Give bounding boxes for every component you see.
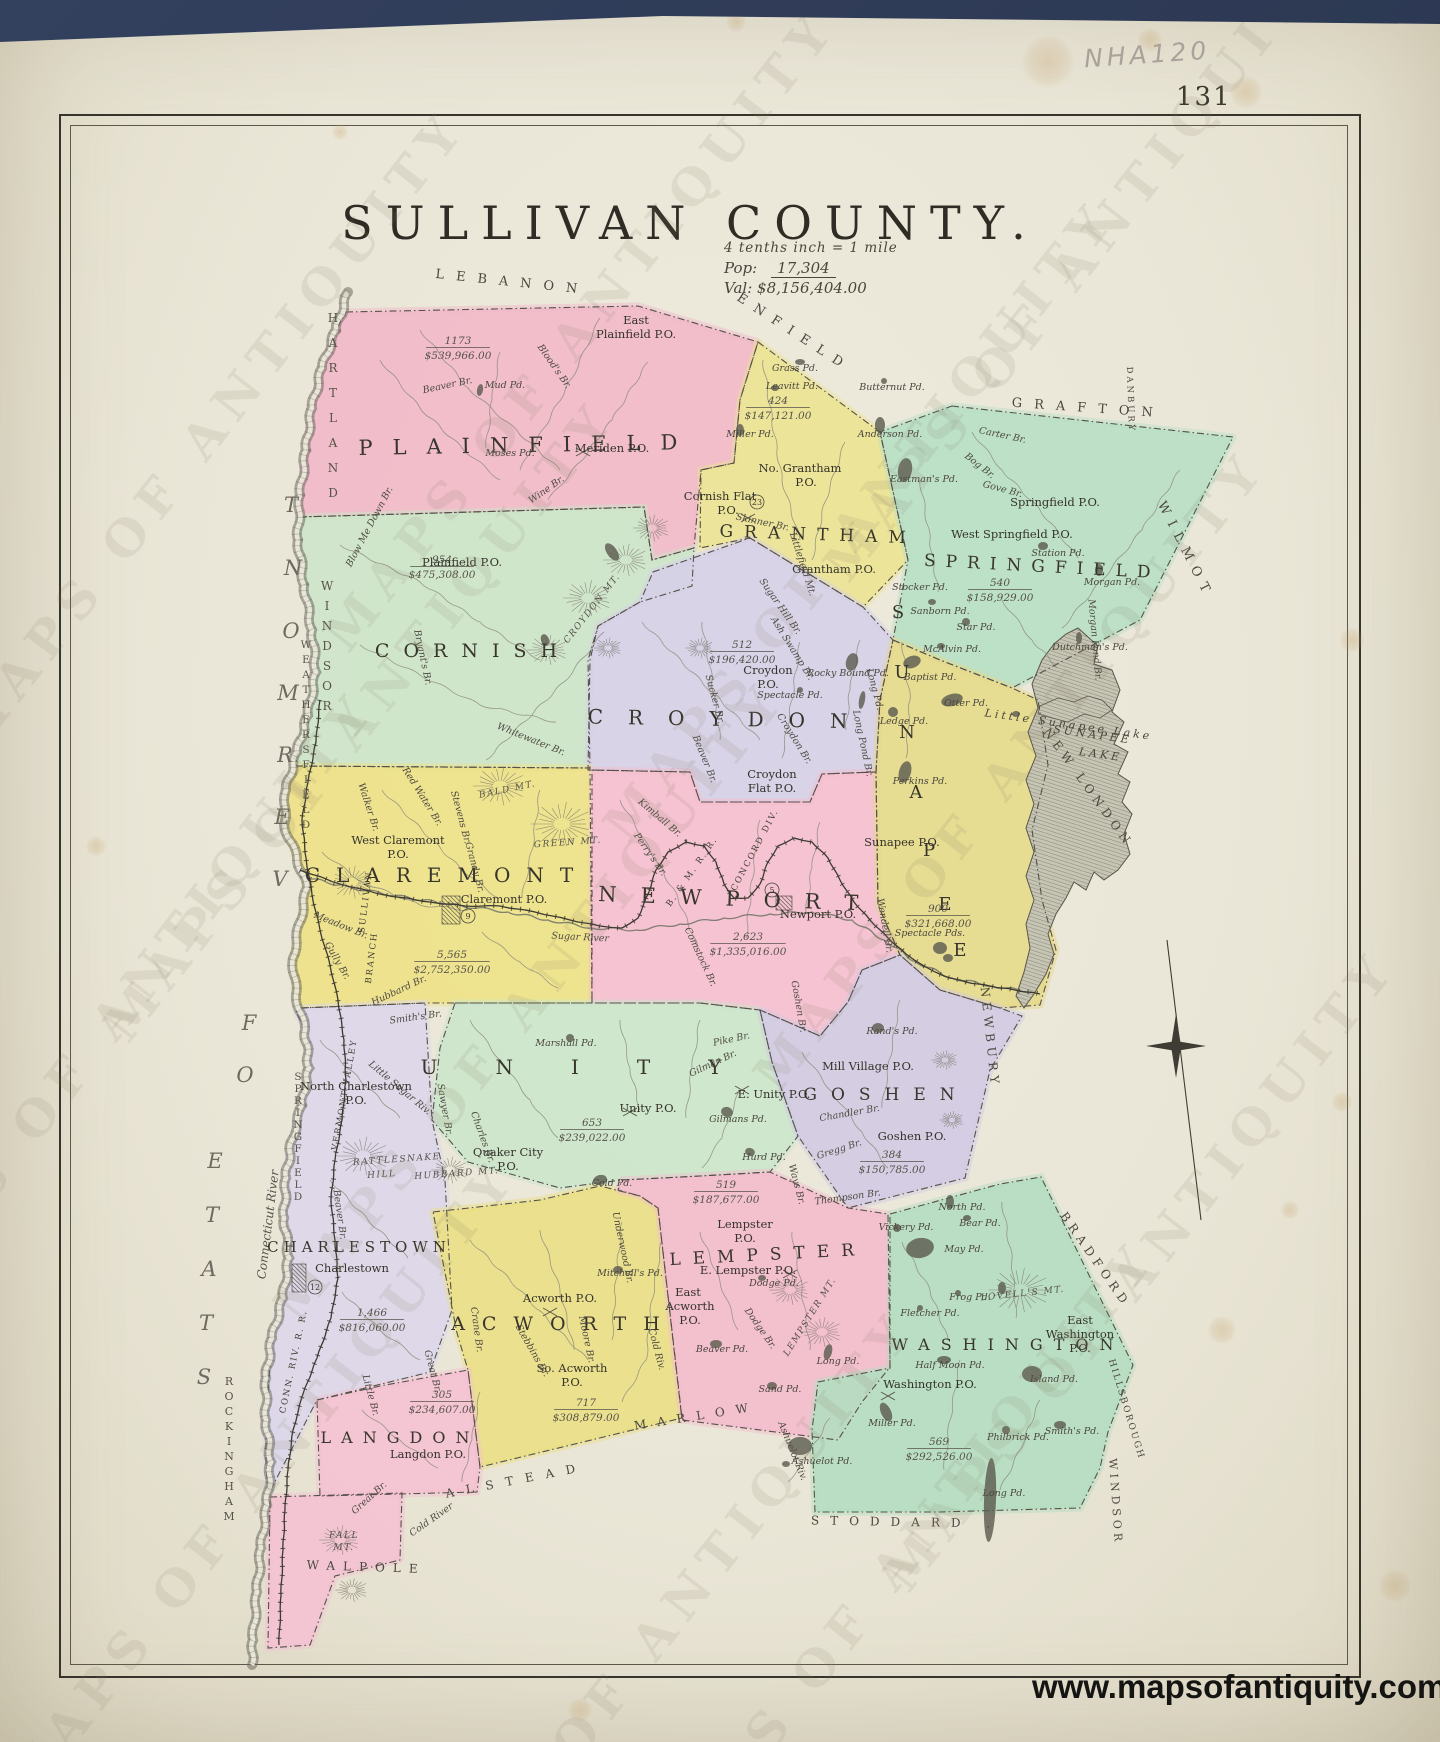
- place-label: P.O.: [387, 847, 408, 861]
- vermont-town-letter: N: [328, 461, 339, 475]
- vermont-town-letter: I: [296, 1155, 300, 1167]
- town-pop-washington: 569: [929, 1436, 949, 1448]
- pond-label: Miller Pd.: [725, 429, 774, 440]
- pond-label: Bear Pd.: [958, 1218, 1000, 1229]
- town-name-letter-sunapee: E: [953, 940, 966, 961]
- vermont-town-letter: G: [294, 1131, 302, 1143]
- pond-label: Sand Pd.: [759, 1384, 802, 1395]
- vermont-town-letter: C: [225, 1405, 233, 1418]
- neighbor-label: WINDSOR: [1106, 1458, 1125, 1546]
- place-label: P.O.: [757, 677, 778, 691]
- vermont-town-letter: A: [301, 669, 310, 681]
- town-pop-newport: 2,623: [732, 931, 763, 943]
- vermont-town-letter: W: [321, 579, 334, 593]
- place-label: Acworth: [664, 1299, 715, 1313]
- place-label: Washington: [1046, 1327, 1115, 1341]
- place-label: Langdon P.O.: [390, 1447, 466, 1461]
- map-sheet: NHA120 131 SULLIVAN COUNTY. 4 tenths inc…: [0, 0, 1440, 1742]
- pond-label: Long Pd.: [816, 1356, 860, 1367]
- vermont-town-letter: G: [225, 1465, 234, 1478]
- vermont-town-letter: E: [302, 789, 310, 801]
- pond-label: Grass Pd.: [772, 363, 818, 374]
- place-label: Sunapee P.O.: [864, 835, 940, 849]
- vermont-town-letter: H: [224, 1480, 234, 1493]
- pond-label: Station Pd.: [1031, 548, 1084, 559]
- pond-label: Marshall Pd.: [534, 1038, 596, 1049]
- pond-label: Anderson Pd.: [857, 429, 922, 440]
- town-pop-lempster: 519: [716, 1179, 736, 1191]
- state-of-vermont-letter: M: [276, 681, 299, 705]
- pond-label: Ledge Pd.: [879, 716, 928, 727]
- pond-label: Smith's Pd.: [1045, 1426, 1100, 1437]
- place-label: Meriden P.O.: [575, 441, 649, 455]
- state-of-vermont-letter: S: [197, 1365, 211, 1389]
- pond-label: Cold Pd.: [592, 1178, 633, 1189]
- vermont-town-letter: L: [295, 1179, 302, 1191]
- town-val-grantham: $147,121.00: [745, 410, 812, 422]
- vermont-town-letter: F: [302, 759, 309, 771]
- mountain-label: HILL: [366, 1169, 397, 1181]
- town-pop-springfield: 540: [990, 577, 1010, 589]
- vermont-town-letter: N: [224, 1450, 234, 1463]
- pond-label: Fletcher Pd.: [899, 1308, 959, 1319]
- line: [448, 1158, 450, 1166]
- circled-number-text: 9: [465, 912, 470, 921]
- stream-label: Cold River: [408, 1500, 457, 1539]
- vermont-town-letter: F: [294, 1143, 301, 1155]
- vermont-town-letter: R: [322, 699, 332, 713]
- town-name-croydon: CROYDON: [587, 705, 872, 734]
- mountain-label: FALL: [328, 1531, 359, 1541]
- town-name-charlestown: CHARLESTOWN: [267, 1238, 451, 1256]
- state-of-vermont-letter: V: [272, 867, 289, 891]
- pond-label: McAlvin Pd.: [922, 644, 981, 655]
- vermont-town-letter: E: [294, 1167, 302, 1179]
- vermont-town-letter: D: [322, 639, 332, 653]
- line: [355, 1582, 362, 1588]
- state-of-vermont-letter: O: [236, 1063, 253, 1087]
- town-pop-croydon: 512: [732, 639, 752, 651]
- vermont-town-letter: H: [328, 311, 338, 325]
- line: [1167, 940, 1201, 1220]
- town-name-langdon: LANGDON: [321, 1428, 480, 1447]
- vermont-town-letter: M: [223, 1510, 234, 1523]
- place-label: P.O.: [1069, 1341, 1090, 1355]
- state-of-vermont-letter: T: [284, 493, 300, 517]
- pond-label: Sanborn Pd.: [910, 606, 969, 617]
- place-label: Croydon: [743, 663, 793, 677]
- village-block: [442, 896, 460, 924]
- place-label: Newport P.O.: [780, 907, 856, 921]
- pond-label: Spectacle Pds.: [895, 928, 965, 939]
- vermont-town-letter: I: [296, 1107, 300, 1119]
- place-label: Acworth P.O.: [522, 1291, 597, 1305]
- vermont-town-letter: E: [302, 654, 310, 666]
- pond-label: Stocker Pd.: [892, 582, 948, 593]
- town-val-acworth: $308,879.00: [553, 1412, 620, 1424]
- place-label: P.O.: [679, 1313, 700, 1327]
- line: [346, 1593, 350, 1600]
- polygon: [1146, 1041, 1206, 1051]
- place-label: P.O.: [561, 1375, 582, 1389]
- place-label: No. Grantham: [759, 461, 842, 475]
- town-pop-sunapee: 900: [928, 903, 948, 915]
- vermont-town-letter: O: [322, 679, 332, 693]
- place-label: West Springfield P.O.: [951, 527, 1073, 541]
- vermont-town-letter: I: [227, 1435, 231, 1448]
- neighbor-label: LEBANON: [435, 267, 590, 298]
- line: [453, 1161, 461, 1167]
- circled-number-text: 12: [310, 1283, 320, 1292]
- place-label: E. Lempster P.O.: [700, 1263, 796, 1277]
- place-label: Croydon: [747, 767, 797, 781]
- line: [451, 1157, 453, 1167]
- vermont-town-letter: W: [301, 639, 312, 651]
- line: [353, 1578, 355, 1587]
- pond-label: Gilmans Pd.: [709, 1114, 767, 1125]
- pond-label: Dodge Pd.: [748, 1278, 799, 1289]
- town-pop-acworth: 717: [576, 1397, 596, 1409]
- town-name-goshen: GOSHEN: [803, 1085, 968, 1105]
- pond-label: Rand's Pd.: [865, 1026, 917, 1037]
- vermont-town-letter: S: [323, 659, 331, 673]
- neighbor-label: STODDARD .: [811, 1513, 1001, 1530]
- state-of-vermont-letter: N: [283, 556, 303, 580]
- place-label: Unity P.O.: [619, 1101, 676, 1115]
- vermont-town-letter: L: [329, 411, 337, 425]
- town-pop-unity: 653: [582, 1117, 602, 1129]
- place-label: West Claremont: [351, 833, 445, 847]
- vermont-town-letter: O: [224, 1390, 233, 1403]
- vermont-town-letter: T: [329, 386, 337, 400]
- town-val-claremont: $2,752,350.00: [414, 964, 491, 976]
- pond-label: Island Pd.: [1029, 1374, 1078, 1385]
- pond-label: Butternut Pd.: [858, 382, 924, 393]
- pond-label: Philbrick Pd.: [986, 1432, 1049, 1443]
- vermont-town-letter: L: [303, 804, 310, 816]
- line: [350, 1580, 351, 1587]
- town-pop-charlestown: 1,466: [357, 1307, 387, 1319]
- pond-label: Eastman's Pd.: [889, 474, 958, 485]
- vermont-town-letter: N: [293, 1119, 302, 1131]
- state-of-vermont-letter: O: [282, 619, 299, 643]
- town-pop-claremont: 5,565: [437, 949, 467, 961]
- pond-label: Mud Pd.: [484, 380, 525, 391]
- vermont-town-letter: I: [304, 774, 308, 786]
- vermont-town-letter: D: [294, 1191, 302, 1203]
- pond-label: Leavitt Pd.: [765, 381, 818, 392]
- vermont-town-letter: H: [301, 699, 310, 711]
- place-label: East: [1067, 1313, 1093, 1327]
- state-of-vermont-letter: T: [199, 1311, 215, 1335]
- place-label: Claremont P.O.: [461, 892, 548, 906]
- pond-label: Miller Pd.: [867, 1418, 916, 1429]
- state-of-vermont-letter: E: [206, 1149, 222, 1173]
- town-val-washington: $292,526.00: [906, 1451, 973, 1463]
- pond-label: May Pd.: [943, 1244, 983, 1255]
- pond-label: Hurd Pd.: [741, 1152, 786, 1163]
- photo-background: NHA120 131 SULLIVAN COUNTY. 4 tenths inc…: [0, 0, 1440, 1742]
- pond-label: Moses Pd.: [484, 448, 534, 459]
- vermont-town-letter: T: [302, 684, 309, 696]
- town-name-acworth: ACWORTH: [450, 1313, 677, 1335]
- town-val-newport: $1,335,016.00: [710, 946, 787, 958]
- vermont-town-letter: A: [328, 436, 338, 450]
- pond-label: Perkins Pd.: [892, 776, 947, 787]
- town-val-goshen: $150,785.00: [859, 1164, 926, 1176]
- place-label: Washington P.O.: [883, 1377, 977, 1391]
- town-name-claremont: CLAREMONT: [305, 863, 589, 887]
- vermont-town-letter: A: [224, 1495, 234, 1508]
- pond-label: Half Moon Pd.: [914, 1360, 984, 1371]
- place-label: P.O.: [497, 1159, 518, 1173]
- town-val-lempster: $187,677.00: [693, 1194, 760, 1206]
- place-label: P.O.: [795, 475, 816, 489]
- place-label: Plainfield P.O.: [596, 327, 676, 341]
- town-pop-plainfield: 1173: [445, 335, 472, 347]
- pond: [782, 1461, 790, 1467]
- vermont-town-letter: D: [328, 486, 338, 500]
- river-name: Connecticut River: [254, 1168, 281, 1280]
- place-label: Plainfield P.O.: [422, 555, 502, 569]
- line: [353, 1593, 355, 1602]
- pond-label: Morgan Pd.: [1083, 577, 1140, 588]
- vermont-town-letter: I: [325, 599, 330, 613]
- town-val-springfield: $158,929.00: [967, 592, 1034, 604]
- seller-url-watermark: www.mapsofantiquity.com: [1032, 1668, 1440, 1706]
- line: [354, 1593, 358, 1600]
- state-of-vermont-letter: T: [205, 1203, 221, 1227]
- state-of-vermont-letter: R: [276, 743, 293, 767]
- pond: [933, 942, 947, 954]
- vermont-town-letter: N: [322, 619, 333, 633]
- pond-label: North Pd.: [937, 1202, 985, 1213]
- vermont-town-letter: D: [302, 819, 310, 831]
- town-pop-goshen: 384: [882, 1149, 902, 1161]
- town-name-cornish: CORNISH: [375, 640, 571, 662]
- vermont-town-letter: R: [294, 1095, 303, 1107]
- state-of-vermont-letter: E: [273, 805, 289, 829]
- place-label: Mill Village P.O.: [822, 1059, 914, 1073]
- place-label: E. Unity P.O.: [738, 1087, 811, 1101]
- state-of-vermont-letter: A: [199, 1257, 216, 1281]
- state-of-vermont-letter: F: [241, 1011, 258, 1035]
- place-label: Goshen P.O.: [878, 1129, 947, 1143]
- pond-label: Otter Pd.: [944, 698, 988, 709]
- pond: [943, 954, 953, 962]
- vermont-town-letter: E: [302, 714, 310, 726]
- pond-label: Baptist Pd.: [903, 672, 957, 683]
- mountain-hachure: [335, 1578, 366, 1602]
- vermont-town-letter: K: [225, 1420, 234, 1433]
- pond-label: Long Pd.: [982, 1488, 1026, 1499]
- vermont-town-letter: A: [328, 336, 338, 350]
- place-label: Charlestown: [315, 1261, 389, 1275]
- line: [350, 1593, 351, 1599]
- place-label: Lempster: [717, 1217, 773, 1231]
- vermont-town-letter: R: [225, 1375, 234, 1388]
- pond-label: Vickery Pd.: [879, 1222, 934, 1233]
- town-val-unity: $239,022.00: [559, 1132, 626, 1144]
- compass-needle: [1146, 940, 1206, 1220]
- town-pop-grantham: 424: [767, 395, 788, 407]
- place-label: Flat P.O.: [748, 781, 796, 795]
- vermont-town-letter: R: [328, 361, 338, 375]
- county-map: 231259LEBANONENFIELDGRAFTONWILMOTDANBURY…: [0, 0, 1440, 1742]
- place-label: Cornish Flat: [684, 489, 757, 503]
- vermont-town-letter: R: [302, 729, 311, 741]
- town-val-plainfield: $539,966.00: [425, 350, 492, 362]
- pond-label: Star Pd.: [956, 622, 995, 633]
- pond: [928, 599, 936, 605]
- place-label: East: [675, 1285, 701, 1299]
- town-val-cornish: $475,308.00: [409, 569, 476, 581]
- place-label: East: [623, 313, 649, 327]
- mountain-label: MT.: [332, 1543, 354, 1553]
- place-label: Springfield P.O.: [1010, 495, 1100, 509]
- vermont-town-letter: S: [302, 744, 309, 756]
- town-val-langdon: $234,607.00: [409, 1404, 476, 1416]
- town-name-letter-sunapee: S: [892, 602, 904, 623]
- pond-label: Beaver Pd.: [695, 1344, 748, 1355]
- place-label: P.O.: [734, 1231, 755, 1245]
- town-val-charlestown: $816,060.00: [339, 1322, 406, 1334]
- pond-label: Spectacle Pd.: [757, 690, 823, 701]
- village-block: [292, 1264, 306, 1292]
